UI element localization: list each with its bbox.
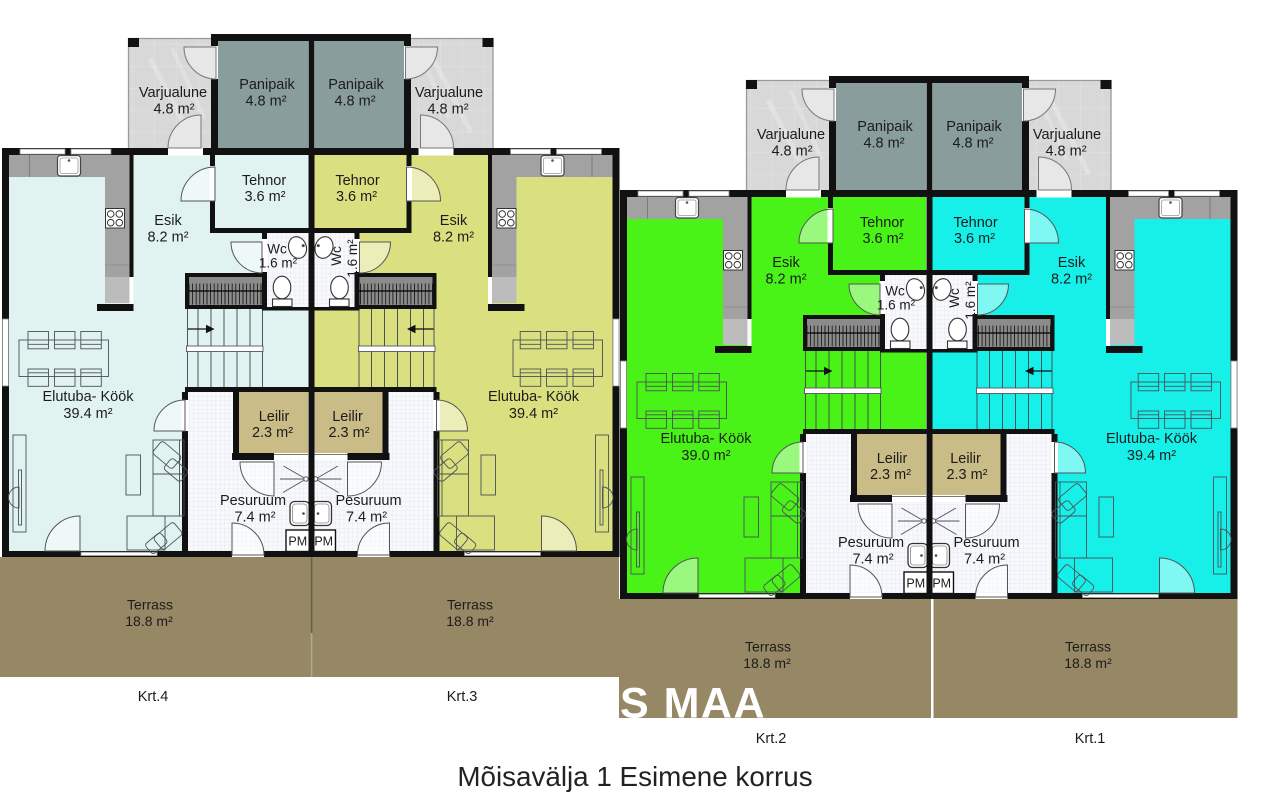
svg-text:4.8 m²: 4.8 m²	[153, 102, 194, 118]
svg-text:Mõisavälja 1 Esimene korrus: Mõisavälja 1 Esimene korrus	[457, 761, 812, 792]
svg-text:Krt.2: Krt.2	[756, 731, 787, 747]
svg-text:7.4 m²: 7.4 m²	[964, 552, 1005, 568]
svg-text:PM: PM	[314, 535, 333, 549]
svg-text:PM: PM	[288, 535, 307, 549]
svg-text:39.4 m²: 39.4 m²	[509, 406, 558, 422]
svg-text:3.6 m²: 3.6 m²	[336, 189, 377, 205]
svg-text:Pesuruum: Pesuruum	[335, 493, 401, 509]
svg-text:Esik: Esik	[440, 213, 468, 229]
svg-text:1.6 m²: 1.6 m²	[345, 239, 360, 278]
svg-text:2.3 m²: 2.3 m²	[328, 425, 369, 441]
svg-text:Panipaik: Panipaik	[857, 119, 913, 135]
svg-text:Terrass: Terrass	[1065, 639, 1111, 655]
svg-text:Wc: Wc	[267, 242, 287, 257]
svg-text:Esik: Esik	[1058, 255, 1086, 271]
svg-text:S MAA: S MAA	[620, 680, 766, 728]
svg-text:4.8 m²: 4.8 m²	[1045, 144, 1086, 160]
svg-text:4.8 m²: 4.8 m²	[771, 144, 812, 160]
svg-text:18.8 m²: 18.8 m²	[743, 655, 791, 671]
svg-text:Terrass: Terrass	[127, 597, 173, 613]
svg-text:Krt.1: Krt.1	[1075, 731, 1106, 747]
svg-text:Pesuruum: Pesuruum	[953, 535, 1019, 551]
svg-text:Varjualune: Varjualune	[139, 85, 207, 101]
svg-text:Wc: Wc	[947, 288, 962, 308]
svg-text:3.6 m²: 3.6 m²	[862, 231, 903, 247]
svg-text:2.3 m²: 2.3 m²	[252, 425, 293, 441]
svg-text:Panipaik: Panipaik	[328, 77, 384, 93]
svg-text:Varjualune: Varjualune	[415, 85, 483, 101]
svg-text:Leilir: Leilir	[950, 451, 981, 467]
svg-text:Pesuruum: Pesuruum	[838, 535, 904, 551]
svg-text:Elutuba- Köök: Elutuba- Köök	[42, 389, 134, 405]
svg-text:Panipaik: Panipaik	[946, 119, 1002, 135]
svg-text:Tehnor: Tehnor	[953, 215, 998, 231]
svg-text:PM: PM	[932, 577, 951, 591]
svg-text:39.4 m²: 39.4 m²	[63, 406, 112, 422]
svg-text:Leilir: Leilir	[877, 451, 908, 467]
svg-text:4.8 m²: 4.8 m²	[952, 136, 993, 152]
svg-text:Krt.3: Krt.3	[447, 689, 478, 705]
svg-text:Pesuruum: Pesuruum	[220, 493, 286, 509]
svg-text:18.8 m²: 18.8 m²	[125, 613, 173, 629]
svg-text:7.4 m²: 7.4 m²	[346, 510, 387, 526]
svg-text:Elutuba- Köök: Elutuba- Köök	[1106, 431, 1198, 447]
svg-text:7.4 m²: 7.4 m²	[852, 552, 893, 568]
svg-text:PM: PM	[906, 577, 925, 591]
svg-text:3.6 m²: 3.6 m²	[954, 231, 995, 247]
svg-text:8.2 m²: 8.2 m²	[765, 272, 806, 288]
svg-text:Wc: Wc	[885, 284, 905, 299]
svg-text:7.4 m²: 7.4 m²	[234, 510, 275, 526]
svg-text:Tehnor: Tehnor	[860, 215, 905, 231]
svg-text:Esik: Esik	[154, 213, 182, 229]
svg-text:Elutuba- Köök: Elutuba- Köök	[488, 389, 580, 405]
svg-text:Terrass: Terrass	[447, 597, 493, 613]
svg-text:2.3 m²: 2.3 m²	[946, 467, 987, 483]
svg-text:Leilir: Leilir	[259, 409, 290, 425]
svg-text:Varjualune: Varjualune	[757, 127, 825, 143]
svg-text:Tehnor: Tehnor	[242, 173, 287, 189]
svg-text:8.2 m²: 8.2 m²	[433, 230, 474, 246]
svg-text:Panipaik: Panipaik	[239, 77, 295, 93]
svg-text:39.4 m²: 39.4 m²	[1127, 448, 1176, 464]
svg-text:39.0 m²: 39.0 m²	[681, 448, 730, 464]
svg-text:Leilir: Leilir	[332, 409, 363, 425]
svg-text:Terrass: Terrass	[745, 639, 791, 655]
svg-text:4.8 m²: 4.8 m²	[334, 94, 375, 110]
svg-text:Elutuba- Köök: Elutuba- Köök	[660, 431, 752, 447]
svg-text:1.6 m²: 1.6 m²	[259, 256, 298, 271]
svg-text:4.8 m²: 4.8 m²	[427, 102, 468, 118]
svg-text:Krt.4: Krt.4	[138, 689, 169, 705]
svg-text:3.6 m²: 3.6 m²	[244, 189, 285, 205]
svg-text:1.6 m²: 1.6 m²	[963, 281, 978, 320]
svg-text:Esik: Esik	[772, 255, 800, 271]
svg-text:8.2 m²: 8.2 m²	[1051, 272, 1092, 288]
svg-text:Wc: Wc	[329, 246, 344, 266]
svg-text:4.8 m²: 4.8 m²	[245, 94, 286, 110]
svg-text:18.8 m²: 18.8 m²	[446, 613, 494, 629]
svg-text:Varjualune: Varjualune	[1033, 127, 1101, 143]
svg-text:8.2 m²: 8.2 m²	[147, 230, 188, 246]
svg-text:4.8 m²: 4.8 m²	[863, 136, 904, 152]
svg-text:Tehnor: Tehnor	[335, 173, 380, 189]
svg-text:18.8 m²: 18.8 m²	[1064, 655, 1112, 671]
svg-text:2.3 m²: 2.3 m²	[870, 467, 911, 483]
svg-text:1.6 m²: 1.6 m²	[877, 298, 916, 313]
